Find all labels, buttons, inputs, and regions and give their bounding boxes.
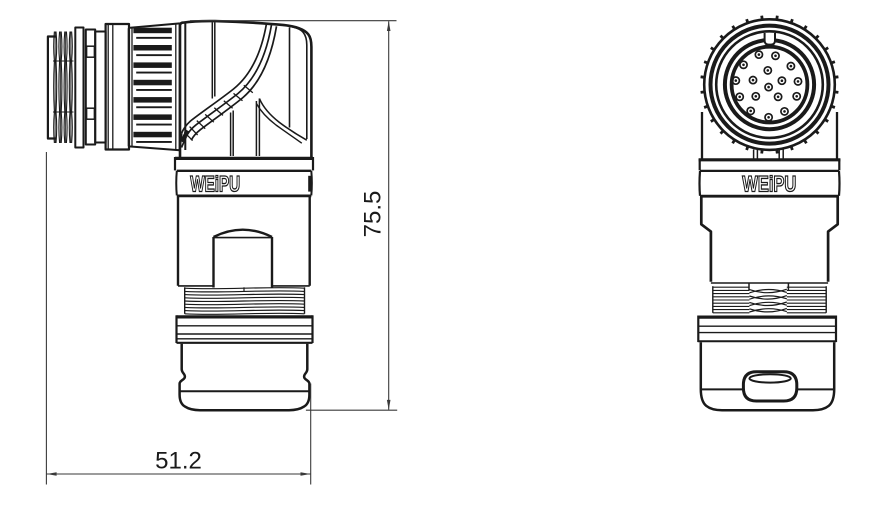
svg-text:75.5: 75.5 — [360, 191, 387, 238]
svg-text:WEiPU: WEiPU — [190, 171, 240, 196]
svg-text:WEiPU: WEiPU — [742, 172, 796, 197]
svg-text:51.2: 51.2 — [155, 448, 202, 475]
